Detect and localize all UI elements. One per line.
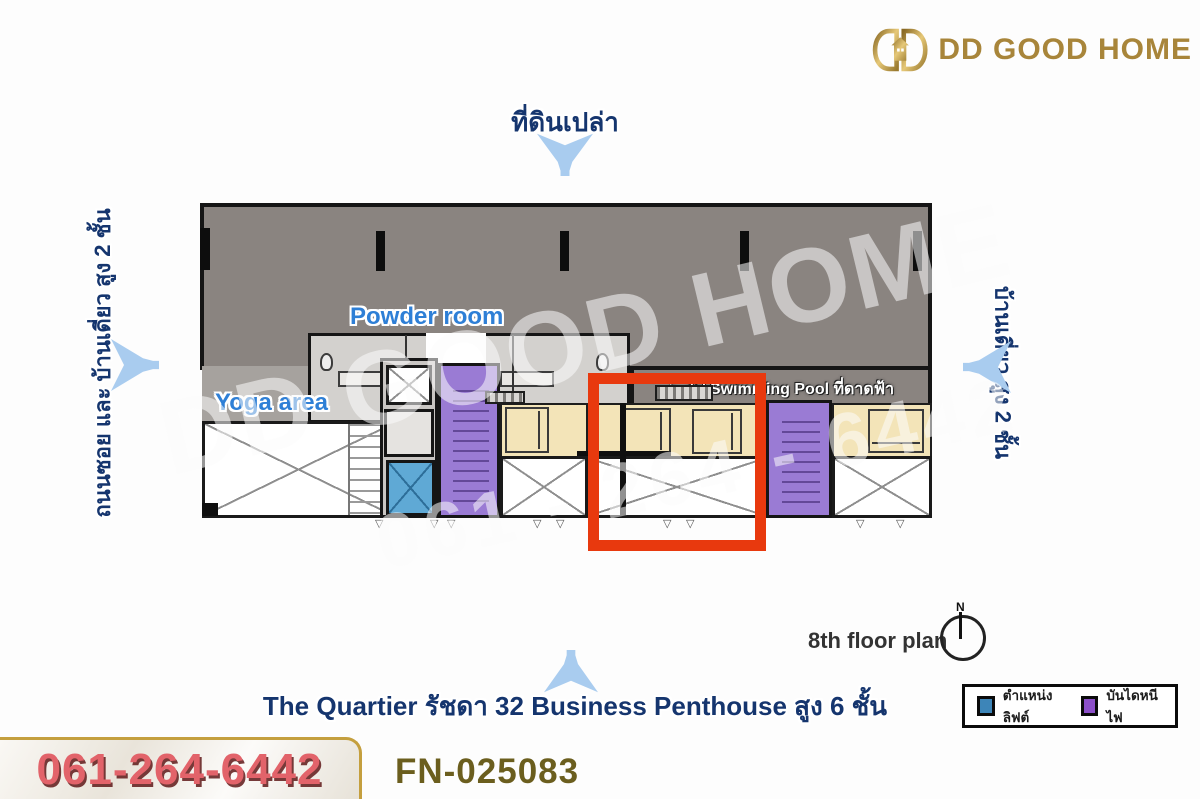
door-mark: ▽ [856,519,864,530]
door-mark: ▽ [447,519,455,530]
phone-number: 061-264-6442 [36,745,322,795]
arrow-right-icon [109,339,159,391]
wall-tick [740,231,749,271]
brand-name: DD GOOD HOME [938,33,1192,67]
wall-tick [913,231,922,271]
wall-corner [202,503,218,516]
door-mark: ▽ [533,519,541,530]
elevator [386,460,435,516]
powder-room-label: Powder room [350,303,503,331]
wc-room [384,409,434,457]
void-area [500,456,588,518]
void-area [832,456,932,518]
wall-tick [200,228,210,270]
project-title: The Quartier รัชดา 32 Business Penthouse… [180,686,970,727]
wall-tick [376,231,385,271]
legend-label: ตำแหน่งลิฟต์ [1003,684,1067,728]
fire-stairs [438,363,500,518]
yoga-area-label: Yoga area [215,389,328,417]
door-mark: ▽ [375,519,383,530]
wc-fixture [386,365,432,405]
floor-plan-note: 8th floor plan [808,628,947,654]
floor-plan: ➤ ไป Swimming Pool ที่ดาดฟ้า [200,203,934,553]
fire-stairs-swatch-icon [1081,696,1099,716]
bed-icon [868,409,924,453]
sink-counter [500,371,554,387]
compass-icon: N [938,602,984,658]
listing-code: FN-025083 [395,752,579,792]
stair-treads [782,421,820,507]
compass-circle [940,615,986,661]
top-surrounding-label: ที่ดินเปล่า [440,102,690,143]
door-mark: ▽ [896,519,904,530]
compass-needle [959,612,962,639]
bed-icon [505,407,549,453]
legend: ตำแหน่งลิฟต์ บันไดหนีไฟ [962,684,1178,728]
legend-label: บันไดหนีไฟ [1106,684,1163,728]
brand-logo: DD GOOD HOME [872,12,1192,88]
phone-banner: 061-264-6442 [0,737,362,799]
wall-tick [560,231,569,271]
cabinet [485,391,525,404]
toilet-icon [320,353,333,371]
legend-item-elevator: ตำแหน่งลิฟต์ [977,684,1067,728]
left-surrounding-label: ถนนซอย และ บ้านเดี่ยว สูง 2 ชั้น [85,203,111,523]
unit-highlight-box [588,373,766,551]
door-mark: ▽ [556,519,564,530]
stair-treads [453,390,489,508]
toilet-icon [596,353,609,371]
door-mark: ▽ [430,519,438,530]
flyer-page: DD GOOD HOME ที่ดินเปล่า ถนนซอย และ บ้าน… [0,0,1200,799]
legend-item-fire-stairs: บันไดหนีไฟ [1081,684,1163,728]
fire-stairs [766,400,832,518]
dd-monogram-icon [872,14,928,86]
elevator-swatch-icon [977,696,995,716]
